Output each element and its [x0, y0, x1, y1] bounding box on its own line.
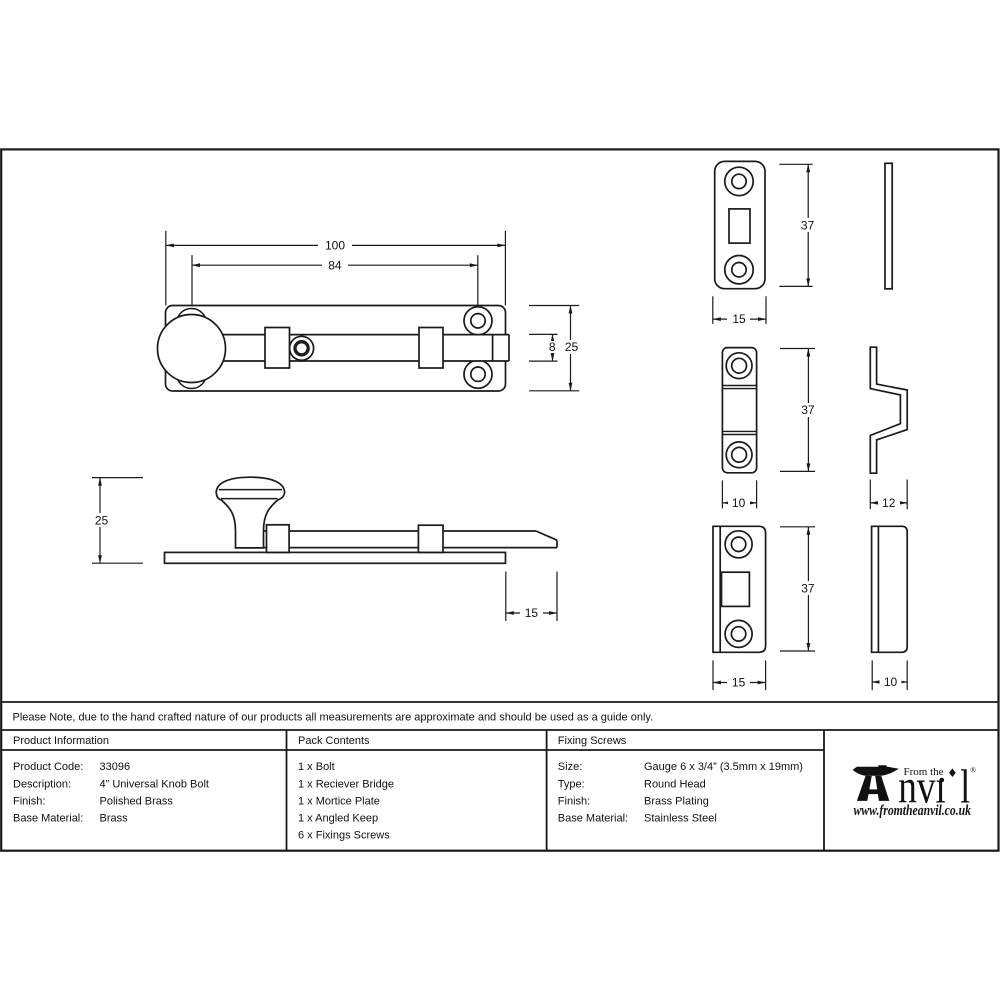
- svg-text:25: 25: [95, 513, 109, 527]
- svg-text:Polished Brass: Polished Brass: [100, 795, 174, 807]
- svg-text:Product Information: Product Information: [13, 735, 109, 747]
- svg-text:Stainless Steel: Stainless Steel: [644, 813, 717, 825]
- svg-text:25: 25: [565, 340, 579, 354]
- svg-text:100: 100: [325, 239, 345, 253]
- svg-text:37: 37: [801, 403, 815, 417]
- svg-text:Base Material:: Base Material:: [558, 813, 628, 825]
- svg-text:37: 37: [801, 218, 815, 232]
- svg-text:1 x Reciever Bridge: 1 x Reciever Bridge: [298, 778, 394, 790]
- svg-text:Please Note, due to the hand c: Please Note, due to the hand crafted nat…: [13, 711, 654, 723]
- svg-text:Brass Plating: Brass Plating: [644, 795, 709, 807]
- svg-text:15: 15: [732, 676, 746, 690]
- svg-text:Description:: Description:: [13, 778, 71, 790]
- svg-text:10: 10: [884, 675, 898, 689]
- svg-text:84: 84: [328, 258, 342, 272]
- svg-text:Gauge 6 x 3/4” (3.5mm x 19mm): Gauge 6 x 3/4” (3.5mm x 19mm): [644, 761, 803, 773]
- svg-text:12: 12: [882, 496, 896, 510]
- svg-text:1 x Mortice Plate: 1 x Mortice Plate: [298, 795, 380, 807]
- svg-text:www.fromtheanvil.co.uk: www.fromtheanvil.co.uk: [854, 803, 972, 819]
- svg-text:Pack Contents: Pack Contents: [298, 735, 370, 747]
- svg-text:Product Code:: Product Code:: [13, 761, 83, 773]
- svg-text:37: 37: [801, 582, 815, 596]
- svg-text:Brass: Brass: [100, 813, 129, 825]
- svg-text:Size:: Size:: [558, 761, 582, 773]
- svg-text:4” Universal Knob Bolt: 4” Universal Knob Bolt: [100, 778, 209, 790]
- svg-text:1 x Bolt: 1 x Bolt: [298, 761, 335, 773]
- svg-text:Type:: Type:: [558, 778, 585, 790]
- svg-text:Fixing Screws: Fixing Screws: [558, 735, 627, 747]
- svg-text:33096: 33096: [100, 761, 131, 773]
- svg-text:6 x Fixings Screws: 6 x Fixings Screws: [298, 830, 390, 842]
- svg-text:Finish:: Finish:: [13, 795, 45, 807]
- svg-text:15: 15: [732, 312, 746, 326]
- svg-text:1 x Angled Keep: 1 x Angled Keep: [298, 813, 378, 825]
- svg-text:8: 8: [549, 340, 556, 354]
- svg-text:Base Material:: Base Material:: [13, 813, 83, 825]
- svg-text:15: 15: [525, 606, 539, 620]
- svg-text:Finish:: Finish:: [558, 795, 590, 807]
- svg-text:10: 10: [732, 496, 746, 510]
- svg-text:Round Head: Round Head: [644, 778, 706, 790]
- svg-text:®: ®: [970, 765, 976, 774]
